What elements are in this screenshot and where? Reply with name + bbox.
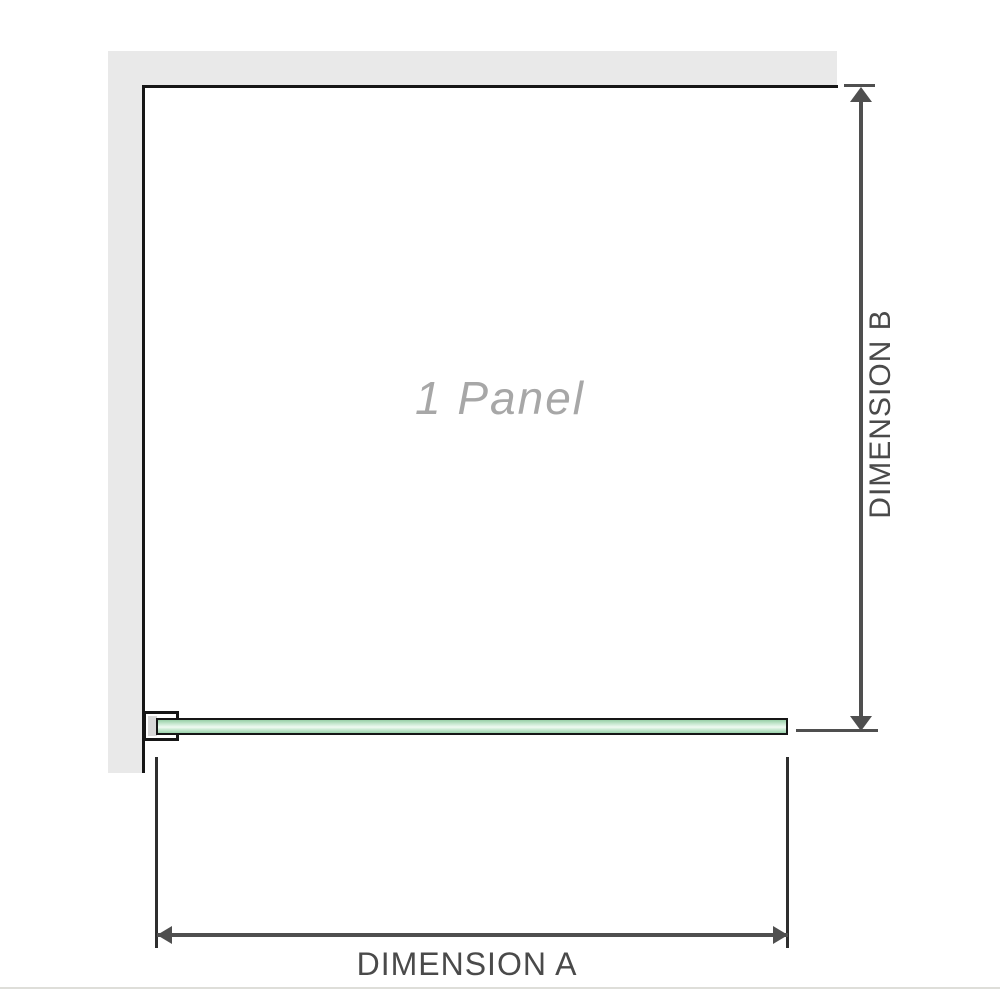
panel-outline-left	[142, 85, 145, 773]
wall-left	[108, 51, 143, 773]
dimension-b-line	[859, 95, 863, 720]
dimension-b-arrowhead-down-icon	[850, 716, 872, 731]
dimension-a-line	[157, 933, 788, 937]
dimension-a-arrowhead-left-icon	[157, 926, 172, 944]
dimension-a-arrowhead-right-icon	[773, 926, 788, 944]
dimension-a-extension-left	[155, 757, 158, 948]
dimension-b-arrowhead-up-icon	[850, 87, 872, 102]
dimension-a-extension-right	[786, 757, 789, 948]
dimension-b-label: DIMENSION B	[866, 304, 896, 524]
dimension-a-label: DIMENSION A	[287, 946, 647, 982]
panel-outline-top	[142, 85, 838, 88]
panel-dimension-diagram: 1 Panel DIMENSION B DIMENSION A	[0, 0, 1000, 1000]
wall-top	[108, 51, 837, 86]
panel-count-label: 1 Panel	[330, 366, 670, 430]
baseline-rule	[0, 987, 1000, 989]
glass-panel	[156, 718, 788, 735]
